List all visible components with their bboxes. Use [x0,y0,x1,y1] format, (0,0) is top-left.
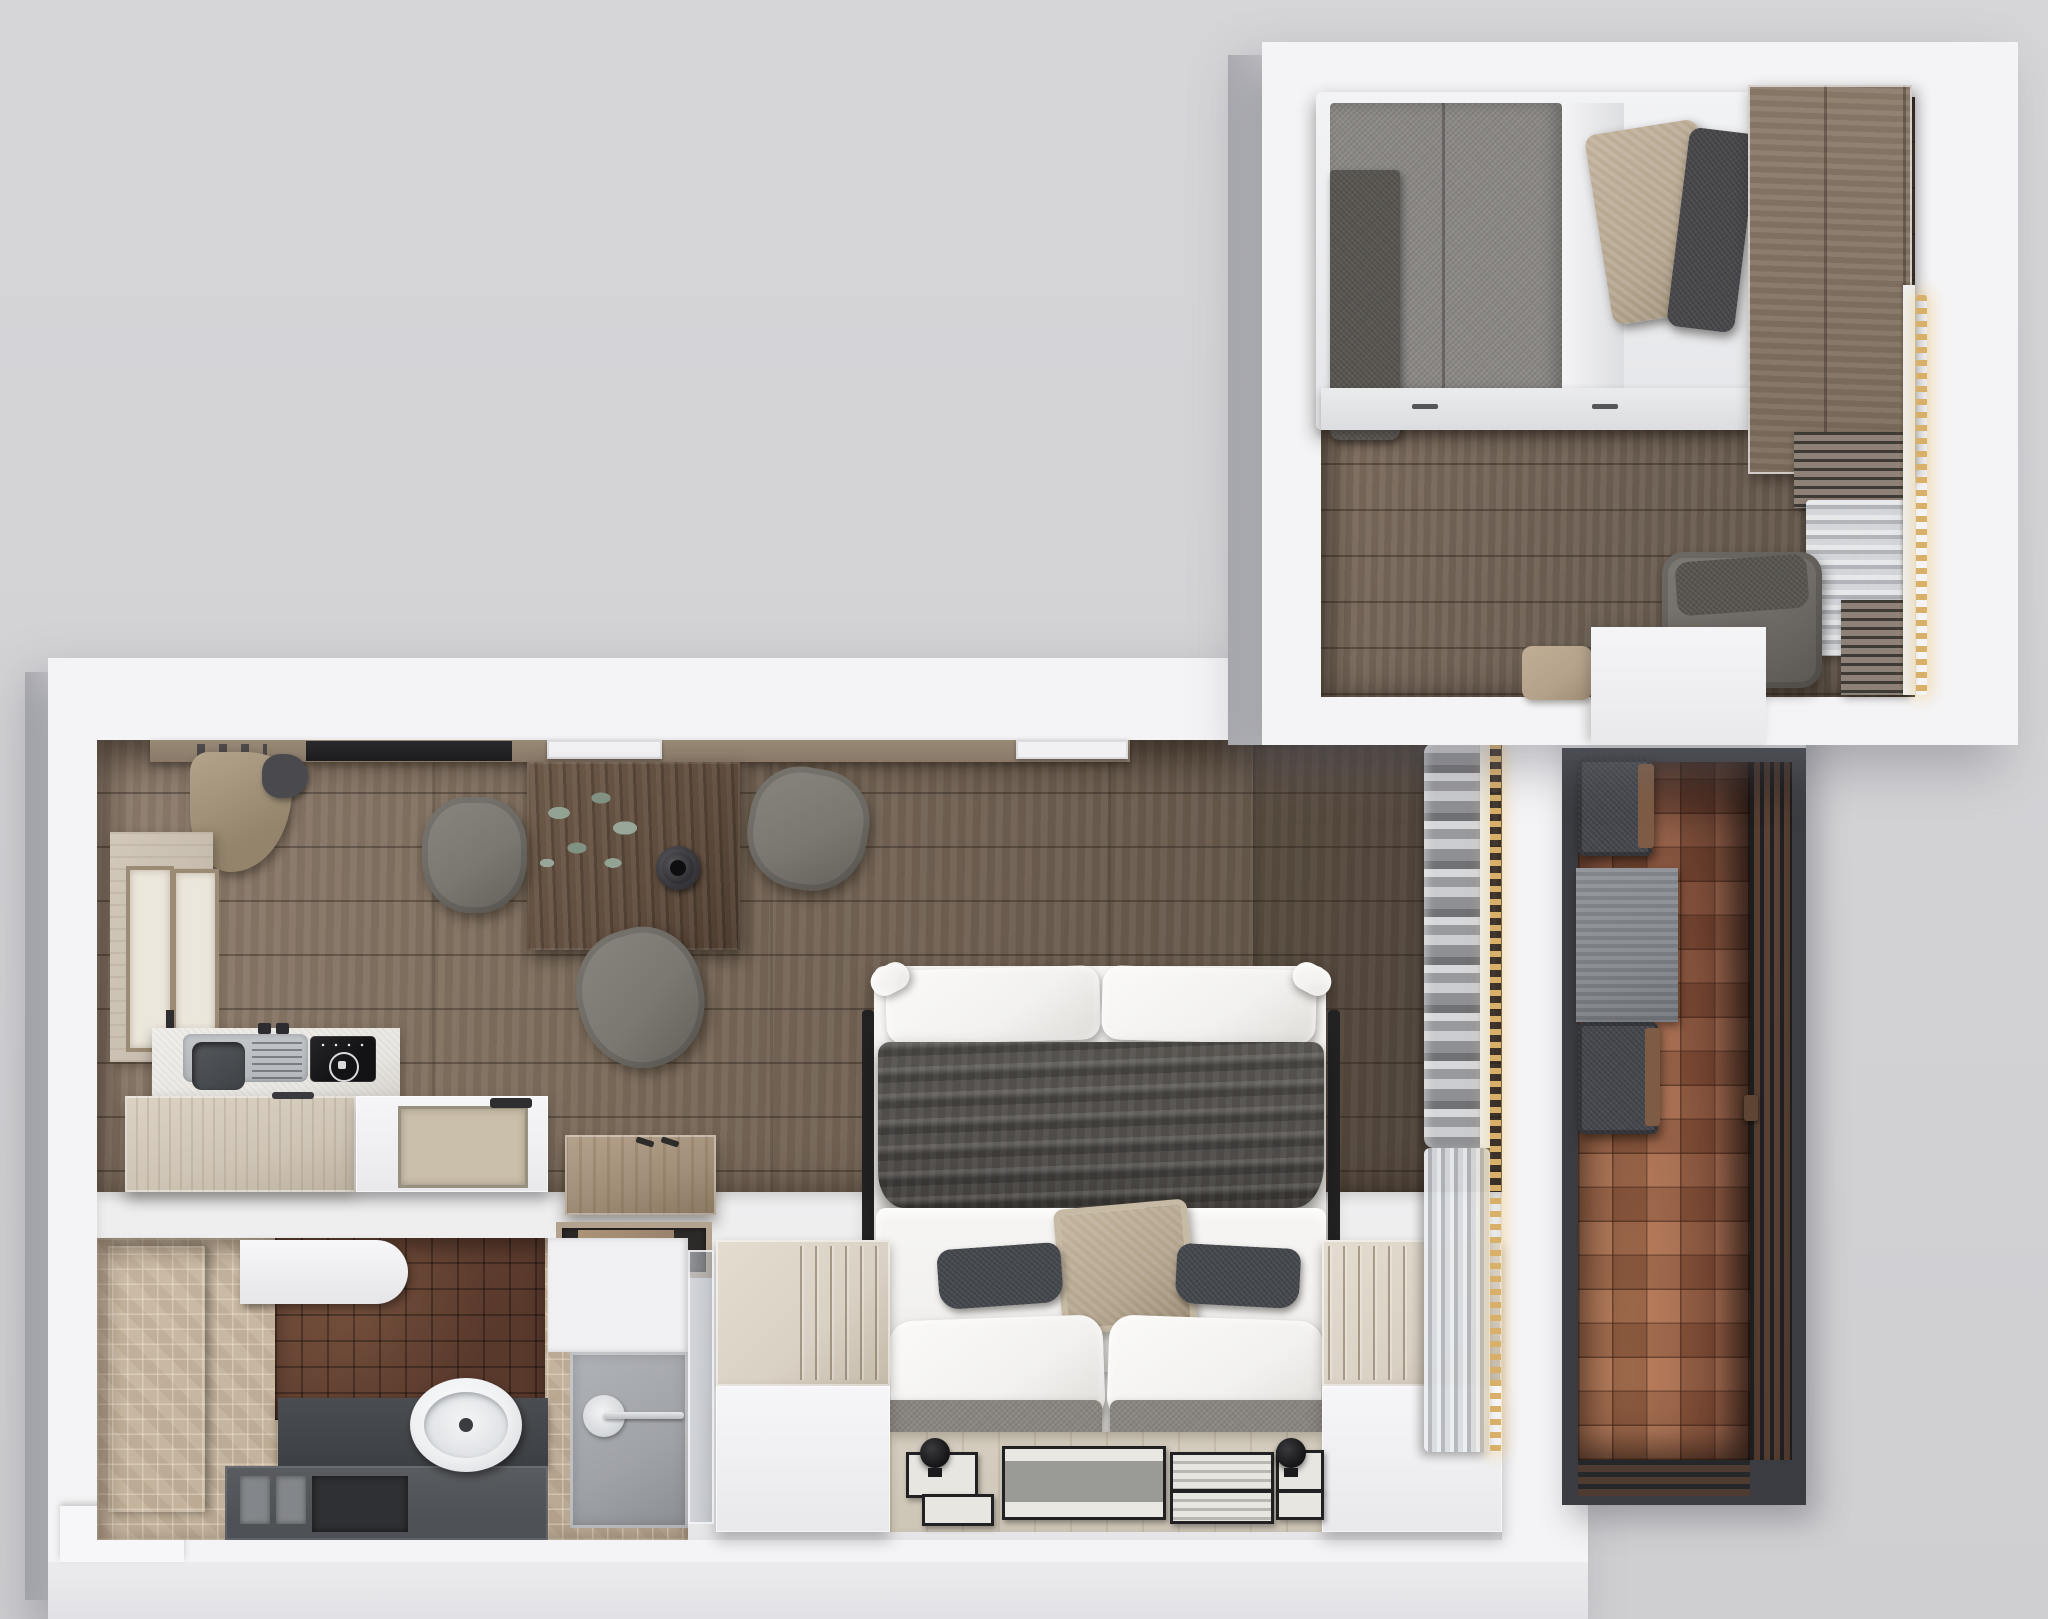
shelf-white-tray [547,740,662,759]
sink-drain-dot [459,1418,473,1432]
bed-gray-blanket [878,1042,1324,1208]
bed-top-pillow-left [885,965,1101,1045]
bed-footer-handle-2 [1592,404,1618,409]
bedroom-louver-vent [1794,432,1908,508]
bedroom-wardrobe [1748,85,1912,474]
table-vase-hole [670,860,686,876]
bedroom-left-wall-face [1228,55,1262,745]
curtain-rail-white [1480,743,1490,1148]
balcony-mat [1576,868,1678,1022]
bed-top-pillow-right [1101,965,1317,1045]
bedroom-duvet-fold-line [1442,103,1445,393]
bedroom-floor-pouf [1522,646,1592,700]
picture-frame-7 [1276,1490,1324,1520]
room-balcony [1562,706,1806,1505]
dining-chair-left [422,797,527,913]
shower-wall-white [548,1238,688,1352]
picture-frame-2 [922,1494,994,1526]
sink-drainer [252,1042,302,1080]
tv-panel [306,741,512,761]
lamp-stand-right [1284,1468,1298,1477]
balcony-chair-upper-arm [1638,764,1654,848]
round-floor-lamp-right [1276,1438,1306,1468]
sink-faucet-handle-2 [276,1023,289,1034]
sheer-curtain-main [1424,1148,1490,1452]
wooden-stool [565,1135,716,1215]
round-floor-lamp-left [920,1438,950,1468]
island-handle [272,1092,314,1099]
sofa-bed [862,963,1340,1476]
bathroom-glass-door [688,1250,714,1524]
cooktop-ring-center [338,1061,346,1069]
lumbar-pillow-left [936,1242,1064,1311]
bedroom-bed-footer [1321,388,1752,430]
plant-leaves [535,783,655,883]
serving-tray [398,1106,528,1188]
bedroom-door-step [1591,627,1766,745]
balcony-chair-lower-arm [1645,1028,1660,1126]
vanity-slot-2 [276,1476,306,1524]
coat-dark-bag [262,754,308,798]
balcony-door-handle [1744,1095,1758,1121]
room-bedroom [1262,42,2018,745]
bedroom-chair-back-cushion [1674,553,1809,616]
vanity-inner-tray [312,1476,408,1532]
bathroom-wall-cabinet [240,1240,408,1304]
picture-frame-4 [1170,1452,1274,1492]
picture-frame-3 [1002,1446,1166,1520]
bench-left-front [716,1386,890,1532]
lumbar-pillow-right [1175,1243,1302,1309]
gallery-floor [890,1432,1322,1532]
bathroom-dark-glass-panel [108,1246,205,1512]
sink-basin [192,1042,245,1090]
bench-left-compartments [800,1246,890,1380]
cooktop-burner-icons [318,1041,368,1048]
kitchen-island [125,1096,356,1192]
floorplan-scene [0,0,2048,1619]
bedroom-curtain-rail [1903,285,1915,695]
bench-right-compartments [1328,1246,1412,1380]
bedroom-louver-vent-lower [1841,600,1908,695]
tray-handle-bar [490,1098,532,1108]
led-light-strip-main [1490,743,1501,1452]
bedroom-led-light-strip [1916,295,1927,695]
shower-tray [570,1352,688,1528]
bed-footer-handle-1 [1412,404,1438,409]
shelf-white-tray-right [1016,740,1128,759]
balcony-bottom-slats [1578,1460,1750,1496]
picture-frame-5 [1170,1490,1274,1524]
vanity-slot-1 [240,1476,270,1524]
room-bathroom [97,1238,688,1540]
apartment-left-wall-face [25,672,48,1600]
sink-faucet-handle-1 [258,1023,271,1034]
shower-towel-bar [604,1412,684,1419]
apartment-bottom-wall-face [48,1562,1588,1619]
lamp-stand-left [928,1468,942,1477]
linen-shelf-stack [1424,743,1480,1148]
